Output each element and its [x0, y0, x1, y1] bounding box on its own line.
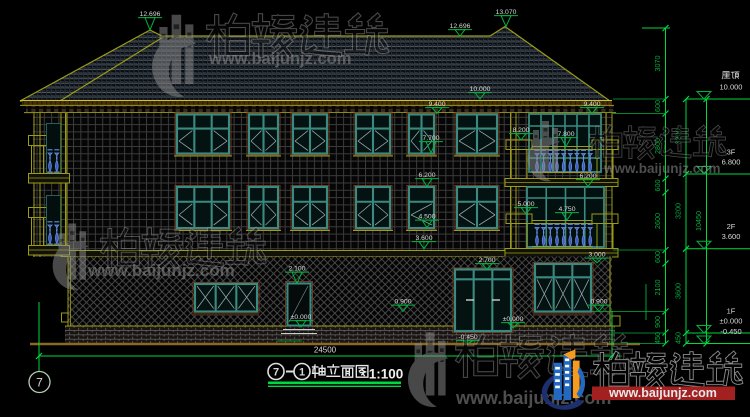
svg-text:0.900: 0.900 — [590, 299, 607, 306]
svg-text:2F: 2F — [727, 222, 736, 231]
svg-text:12.696: 12.696 — [450, 23, 471, 30]
svg-text:7.800: 7.800 — [557, 131, 574, 138]
svg-text:9.400: 9.400 — [428, 101, 445, 108]
svg-text:3.600: 3.600 — [722, 232, 741, 241]
svg-text:10450: 10450 — [694, 211, 703, 231]
svg-text:2100: 2100 — [653, 280, 662, 296]
svg-text:7: 7 — [273, 367, 279, 379]
svg-text:600: 600 — [653, 180, 662, 192]
svg-text:900: 900 — [653, 316, 662, 328]
svg-text:0.900: 0.900 — [394, 299, 411, 306]
svg-text:1F: 1F — [727, 307, 736, 316]
svg-text:1: 1 — [299, 367, 305, 379]
svg-text:4.500: 4.500 — [418, 214, 435, 221]
svg-text:-0.450: -0.450 — [720, 327, 741, 336]
svg-text:10.000: 10.000 — [720, 83, 743, 92]
svg-text:www.baijunjz.com: www.baijunjz.com — [208, 50, 351, 68]
svg-text:450: 450 — [674, 332, 683, 344]
svg-text:24500: 24500 — [314, 346, 337, 355]
svg-text:12.696: 12.696 — [140, 11, 161, 18]
svg-text:6.800: 6.800 — [722, 158, 741, 167]
svg-text:2600: 2600 — [653, 213, 662, 229]
svg-text:7.700: 7.700 — [422, 135, 439, 142]
svg-text:1:100: 1:100 — [369, 367, 404, 382]
svg-text:2.100: 2.100 — [288, 266, 305, 273]
svg-text:3.600: 3.600 — [415, 235, 432, 242]
svg-text:3200: 3200 — [674, 203, 683, 219]
svg-text:600: 600 — [653, 251, 662, 263]
svg-text:13.070: 13.070 — [496, 9, 517, 16]
svg-text:4.750: 4.750 — [558, 206, 575, 213]
svg-text:7: 7 — [36, 376, 43, 390]
svg-text:6.200: 6.200 — [418, 172, 435, 179]
svg-text:3F: 3F — [727, 148, 736, 157]
svg-text:www.baijunjz.com: www.baijunjz.com — [87, 261, 235, 280]
svg-text:3070: 3070 — [653, 56, 662, 72]
svg-text:±0.000: ±0.000 — [720, 317, 743, 326]
svg-text:2.700: 2.700 — [478, 257, 495, 264]
svg-text:±0.000: ±0.000 — [503, 316, 524, 323]
svg-text:3600: 3600 — [674, 283, 683, 299]
svg-text:-0.450: -0.450 — [458, 334, 477, 341]
svg-text:3.000: 3.000 — [588, 252, 605, 259]
svg-text:450: 450 — [653, 332, 662, 344]
svg-text:8.200: 8.200 — [512, 127, 529, 134]
svg-text:±0.000: ±0.000 — [291, 314, 312, 321]
svg-text:6.200: 6.200 — [579, 173, 596, 180]
svg-text:www.baijunjz.com: www.baijunjz.com — [603, 161, 721, 176]
svg-text:10.000: 10.000 — [470, 86, 491, 93]
svg-text:600: 600 — [653, 100, 662, 112]
svg-text:www.baijunjz.com: www.baijunjz.com — [455, 388, 611, 408]
svg-text:5.000: 5.000 — [517, 201, 534, 208]
svg-text:9.400: 9.400 — [583, 101, 600, 108]
svg-text:www.baijunjz.com: www.baijunjz.com — [608, 386, 717, 400]
